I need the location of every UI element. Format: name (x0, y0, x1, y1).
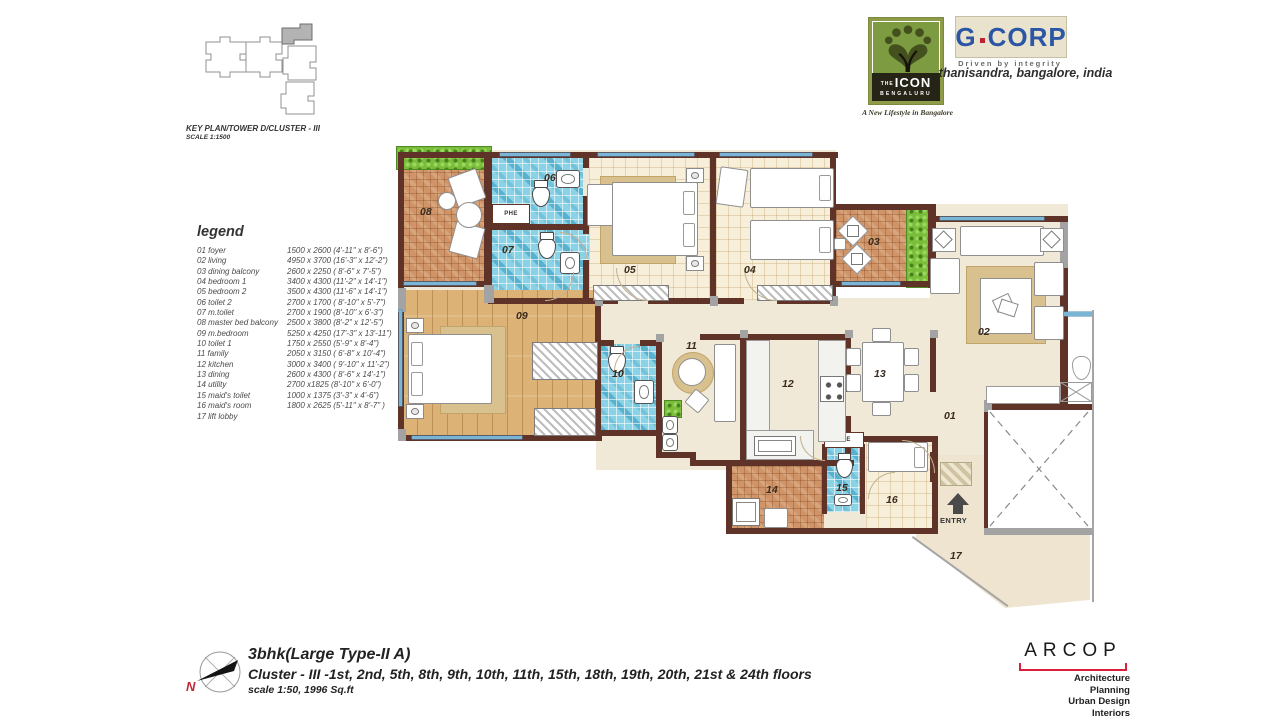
legend-name: 09 m.bedroom (197, 329, 287, 339)
column (740, 330, 748, 338)
legend-item: 09 m.bedroom5250 x 4250 (17'-3" x 13'-11… (197, 329, 407, 339)
legend-name: 12 kitchen (197, 360, 287, 370)
side-table (686, 168, 704, 183)
column (845, 330, 853, 338)
legend-item: 04 bedroom 13400 x 4300 (11'-2" x 14'-1"… (197, 277, 407, 287)
legend-item: 05 bedroom 23500 x 4300 (11'-6" x 14'-1"… (197, 287, 407, 297)
arcop-name: ARCOP (1008, 640, 1138, 662)
armchair (1034, 306, 1064, 340)
legend-item: 10 toilet 11750 x 2550 (5'-9" x 8'-4") (197, 339, 407, 349)
legend-name: 10 toilet 1 (197, 339, 287, 349)
wall (836, 204, 930, 210)
north-label: N (186, 679, 196, 694)
legend-name: 15 maid's toilet (197, 391, 287, 401)
legend-dims: 3500 x 4300 (11'-6" x 14'-1") (287, 287, 407, 297)
project-location: thanisandra, bangalore, india (938, 66, 1113, 80)
room-label-10: 10 (612, 368, 624, 380)
kitchen-sink-icon (754, 436, 796, 456)
legend-dims: 1000 x 1375 (3'-3" x 4'-6") (287, 391, 407, 401)
legend-name: 13 dining (197, 370, 287, 380)
hob-icon (820, 376, 844, 402)
planter (396, 146, 492, 170)
wardrobe (532, 342, 598, 380)
legend-dims: 4950 x 3700 (16'-3" x 12'-2") (287, 256, 407, 266)
sofa (714, 344, 736, 422)
window (412, 436, 522, 439)
dining-chair (872, 328, 891, 342)
wardrobe (534, 408, 596, 436)
legend-name: 06 toilet 2 (197, 298, 287, 308)
room-label-14: 14 (766, 484, 778, 496)
legend-dims: 1750 x 2550 (5'-9" x 8'-4") (287, 339, 407, 349)
icon-logo-city: BENGALURU (872, 91, 940, 97)
wall (726, 528, 938, 534)
utility-sink-icon (732, 498, 760, 526)
legend-dims: 2700 x 1700 ( 8'-10" x 5'-7") (287, 298, 407, 308)
foyer-niche (986, 386, 1060, 404)
wall (984, 528, 1092, 535)
column (484, 285, 494, 303)
desk (587, 184, 615, 226)
icon-bengaluru-logo: THEICON BENGALURU (868, 17, 944, 105)
round-table (456, 202, 482, 228)
legend-name: 17 lift lobby (197, 412, 287, 422)
legend-dims: 2700 x 1900 (8'-10" x 6'-3") (287, 308, 407, 318)
room-label-04: 04 (744, 264, 756, 276)
pillow (683, 223, 695, 247)
planter (906, 206, 930, 288)
sink-icon (834, 494, 852, 506)
legend-name: 08 master bed balcony (197, 318, 287, 328)
column (930, 330, 938, 338)
key-plan-title: KEY PLAN/TOWER D/CLUSTER - III (186, 124, 320, 133)
round-table (678, 358, 706, 386)
gcorp-logo-text: G CORP (955, 22, 1066, 53)
sink-icon (634, 380, 654, 404)
entry-mat (940, 462, 972, 486)
entry-arrow-icon (947, 493, 969, 505)
room-label-07: 07 (502, 244, 514, 256)
sink-icon (662, 416, 678, 434)
column (710, 296, 718, 306)
window (940, 217, 1044, 220)
floor-plan-sheet: KEY PLAN/TOWER D/CLUSTER - III SCALE 1:1… (0, 0, 1280, 720)
legend-dims: 2600 x 4300 ( 8'-6" x 14'-1") (287, 370, 407, 380)
legend-dims: 2050 x 3150 ( 6'-8" x 10'-4") (287, 349, 407, 359)
arcop-service: Planning (1008, 685, 1138, 697)
balcony-table (834, 238, 846, 250)
legend-dims: 1500 x 2600 (4'-11" x 8'-6") (287, 246, 407, 256)
room-label-11: 11 (686, 340, 697, 352)
room-label-02: 02 (978, 326, 990, 338)
desk (715, 166, 748, 208)
single-bed (750, 168, 834, 208)
legend-item: 03 dining balcony2600 x 2250 ( 8'-6" x 7… (197, 267, 407, 277)
room-label-13: 13 (874, 368, 886, 380)
column (656, 334, 664, 342)
phe-label: PHE (504, 211, 518, 217)
arcop-bracket (1019, 663, 1127, 671)
wall (596, 430, 662, 436)
legend-item: 15 maid's toilet1000 x 1375 (3'-3" x 4'-… (197, 391, 407, 401)
legend-name: 01 foyer (197, 246, 287, 256)
icon-logo-icon: ICON (895, 75, 932, 90)
dining-chair (904, 374, 919, 392)
wall (490, 224, 586, 230)
legend-name: 16 maid's room (197, 401, 287, 411)
legend-name: 02 living (197, 256, 287, 266)
adjacent-shaft-outline (1060, 382, 1092, 402)
pillow (411, 372, 423, 396)
window (598, 153, 694, 156)
adjacent-unit-outline (1092, 310, 1094, 602)
tree-icon (874, 23, 942, 73)
double-bed (408, 334, 492, 404)
legend-item: 17 lift lobby (197, 412, 407, 422)
legend-name: 11 family (197, 349, 287, 359)
arcop-service: Interiors (1008, 708, 1138, 720)
room-label-17: 17 (950, 550, 962, 562)
wall (860, 444, 865, 514)
wall (596, 340, 614, 346)
window (720, 153, 812, 156)
room-label-05: 05 (624, 264, 636, 276)
wall (930, 334, 936, 392)
icon-logo-band: THEICON BENGALURU (872, 73, 940, 101)
wall (690, 460, 854, 466)
window (399, 310, 402, 406)
pillow (819, 227, 831, 253)
legend-name: 03 dining balcony (197, 267, 287, 277)
side-table (686, 256, 704, 271)
wall (656, 452, 694, 458)
key-plan-drawing (200, 14, 350, 120)
plan-title: 3bhk(Large Type-II A) (248, 646, 410, 664)
armchair (1034, 262, 1064, 296)
room-label-03: 03 (868, 236, 880, 248)
legend-dims (287, 412, 407, 422)
double-bed (612, 182, 698, 256)
legend-item: 12 kitchen3000 x 3400 ( 9'-10" x 11'-2") (197, 360, 407, 370)
gcorp-corp: CORP (988, 22, 1067, 53)
legend-name: 14 utility (197, 380, 287, 390)
side-table (1040, 228, 1064, 252)
wall (710, 152, 716, 304)
wall (583, 152, 589, 168)
legend-item: 13 dining2600 x 4300 ( 8'-6" x 14'-1") (197, 370, 407, 380)
legend-item: 01 foyer1500 x 2600 (4'-11" x 8'-6") (197, 246, 407, 256)
side-table (406, 404, 424, 419)
gcorp-logo: G CORP (955, 16, 1067, 58)
legend-title: legend (197, 224, 407, 240)
sink-icon (662, 434, 678, 451)
entry-arrow-icon (953, 505, 963, 514)
window (500, 153, 570, 156)
legend-name: 04 bedroom 1 (197, 277, 287, 287)
column (398, 429, 406, 441)
plan-floors: Cluster - III -1st, 2nd, 5th, 8th, 9th, … (248, 666, 812, 682)
gcorp-g: G (955, 22, 976, 53)
wall (932, 436, 938, 534)
legend-item: 11 family2050 x 3150 ( 6'-8" x 10'-4") (197, 349, 407, 359)
utility-table (764, 508, 788, 528)
legend-name: 05 bedroom 2 (197, 287, 287, 297)
room-label-01: 01 (944, 410, 956, 422)
window (404, 282, 476, 285)
phe-shaft: PHE (492, 204, 530, 224)
north-arrow-icon: N (186, 648, 248, 700)
arcop-service: Urban Design (1008, 696, 1138, 708)
sink-icon (556, 170, 580, 188)
entry-label: ENTRY (940, 516, 967, 525)
arcop-logo: ARCOP Architecture Planning Urban Design… (1008, 640, 1138, 719)
legend-dims: 2600 x 2250 ( 8'-6" x 7'-5") (287, 267, 407, 277)
legend-dims: 5250 x 4250 (17'-3" x 13'-11") (287, 329, 407, 339)
sofa (960, 226, 1044, 256)
room-label-12: 12 (782, 378, 794, 390)
lift-shaft (988, 410, 1090, 528)
icon-logo-tagline: A New Lifestyle in Bangalore (860, 108, 955, 117)
legend-dims: 2500 x 3800 (8'-2" x 12'-5") (287, 318, 407, 328)
legend-dims: 1800 x 2625 (5'-11" x 8'-7" ) (287, 401, 407, 411)
legend-item: 16 maid's room1800 x 2625 (5'-11" x 8'-7… (197, 401, 407, 411)
room-label-16: 16 (886, 494, 898, 506)
wall (583, 260, 589, 303)
dining-chair (846, 374, 861, 392)
legend-item: 07 m.toilet2700 x 1900 (8'-10" x 6'-3") (197, 308, 407, 318)
legend-item: 02 living4950 x 3700 (16'-3" x 12'-2") (197, 256, 407, 266)
pillow (819, 175, 831, 201)
column (398, 288, 406, 312)
room-label-06: 06 (544, 172, 556, 184)
legend-item: 14 utility2700 x1825 (8'-10" x 6'-0") (197, 380, 407, 390)
stool (438, 192, 456, 210)
key-plan-scale: SCALE 1:1500 (186, 134, 230, 141)
side-table (932, 228, 956, 252)
dining-chair (872, 402, 891, 416)
plan-scale: scale 1:50, 1996 Sq.ft (248, 684, 354, 696)
armchair (930, 258, 960, 294)
dining-chair (904, 348, 919, 366)
legend-dims: 2700 x1825 (8'-10" x 6'-0") (287, 380, 407, 390)
room-label-15: 15 (836, 482, 848, 494)
legend-item: 08 master bed balcony2500 x 3800 (8'-2" … (197, 318, 407, 328)
legend-item: 06 toilet 22700 x 1700 ( 8'-10" x 5'-7") (197, 298, 407, 308)
dining-chair (846, 348, 861, 366)
icon-logo-name: THEICON (872, 75, 940, 90)
room-label-09: 09 (516, 310, 528, 322)
pillow (683, 191, 695, 215)
kitchen-counter (746, 340, 770, 432)
legend-dims: 3000 x 3400 ( 9'-10" x 11'-2") (287, 360, 407, 370)
legend-name: 07 m.toilet (197, 308, 287, 318)
gcorp-dot-icon (980, 38, 985, 43)
room-label-08: 08 (420, 206, 432, 218)
legend-dims: 3400 x 4300 (11'-2" x 14'-1") (287, 277, 407, 287)
window (842, 282, 900, 285)
adjacent-wc-outline (1072, 356, 1091, 380)
window (1062, 312, 1092, 316)
single-bed (750, 220, 834, 260)
side-table (406, 318, 424, 333)
pillow (411, 342, 423, 366)
icon-logo-the: THE (881, 81, 894, 87)
legend: legend 01 foyer1500 x 2600 (4'-11" x 8'-… (197, 224, 407, 422)
arcop-service: Architecture (1008, 673, 1138, 685)
